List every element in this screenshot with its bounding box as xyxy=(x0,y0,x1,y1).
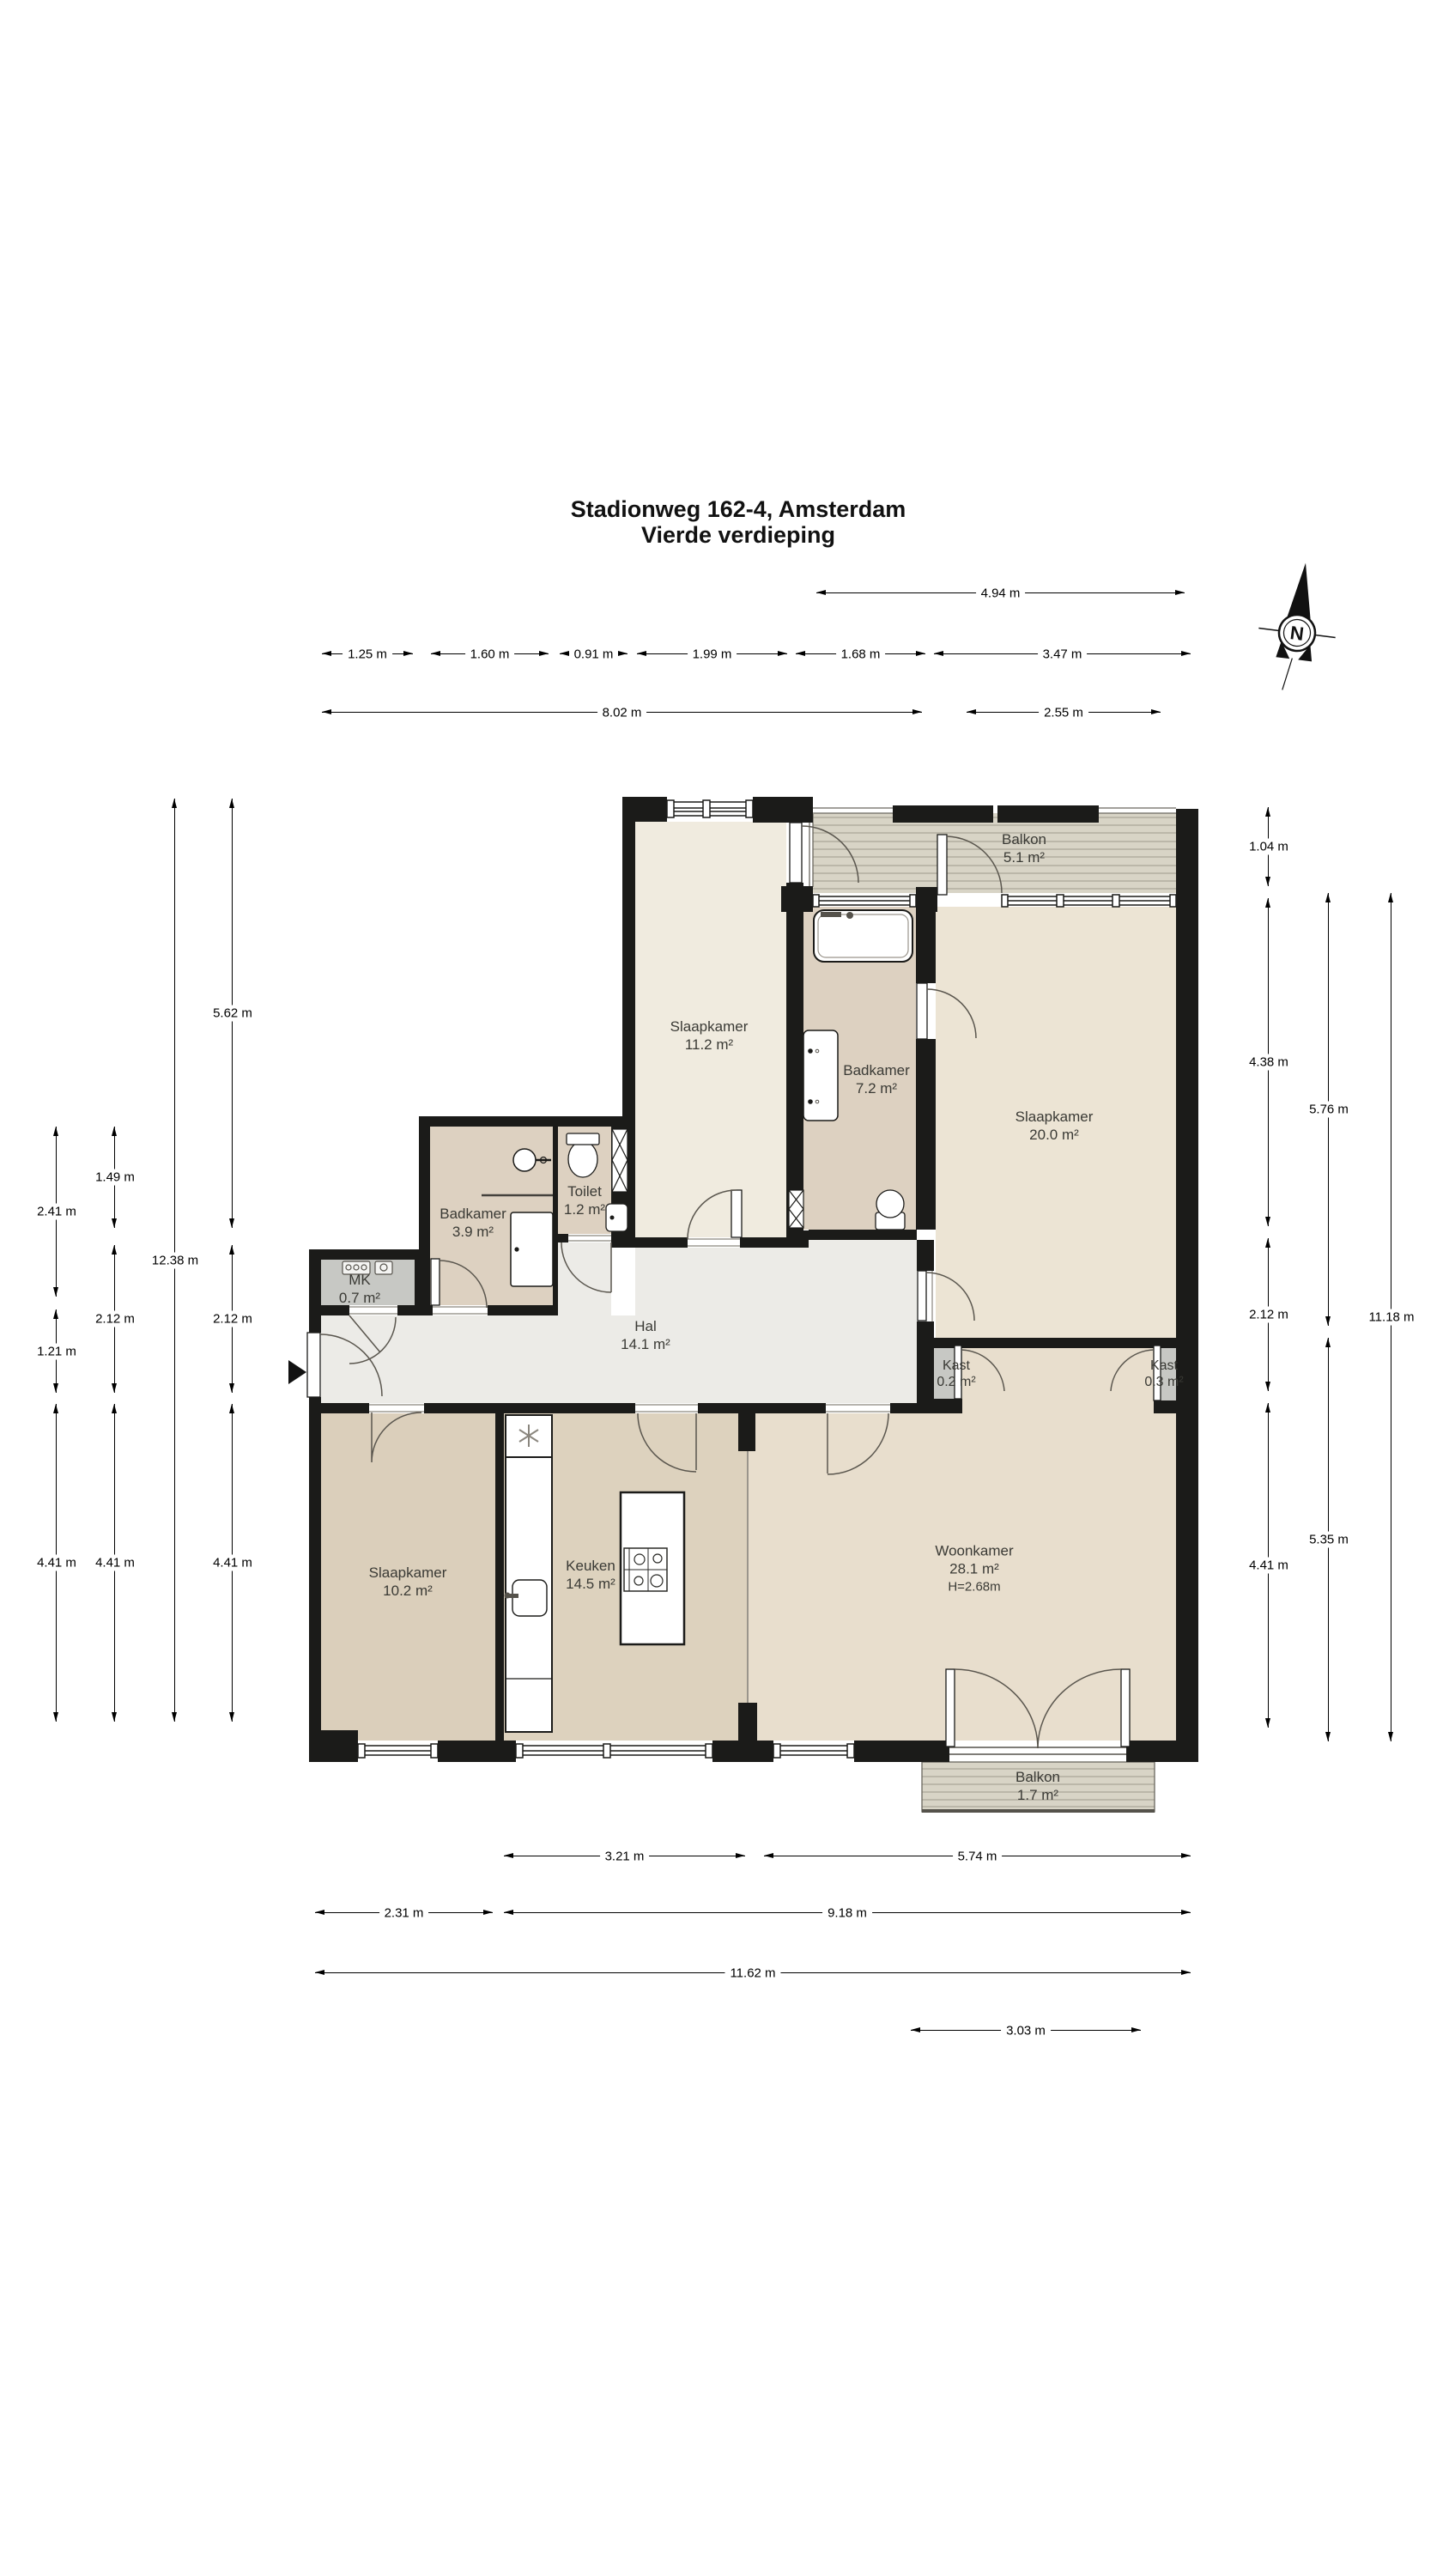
dim-right-104: 1.04 m xyxy=(1268,807,1269,886)
window-slaapkamer-noord xyxy=(667,800,753,817)
dim-top-494: 4.94 m xyxy=(816,592,1185,593)
dim-left-441a: 4.41 m xyxy=(56,1404,57,1722)
door-leaf-slaapkamer-oost xyxy=(918,1271,926,1321)
room-label-slaapkamer-oost: Slaapkamer20.0 m² xyxy=(1016,1108,1094,1144)
compass-icon: N xyxy=(1252,558,1344,696)
dim-left-562: 5.62 m xyxy=(232,799,233,1228)
window-badkamer-groot xyxy=(813,895,916,907)
floor-hal-part xyxy=(786,1240,917,1315)
corner-basin-icon xyxy=(606,1204,627,1231)
dim-left-121: 1.21 m xyxy=(56,1309,57,1393)
floor-hal-part xyxy=(558,1242,611,1315)
kitchen-counter xyxy=(505,1415,553,1732)
window-keuken xyxy=(516,1744,712,1758)
wall-west-lower xyxy=(309,1397,321,1762)
floor-hal-part xyxy=(635,1248,786,1315)
dim-top-347: 3.47 m xyxy=(934,653,1191,654)
threshold-slaapkamer-noord xyxy=(688,1237,740,1248)
threshold-french-doors xyxy=(949,1747,1126,1754)
dim-right-438: 4.38 m xyxy=(1268,898,1269,1226)
window-slaapkamer-oost xyxy=(1002,895,1176,907)
dim-top-199: 1.99 m xyxy=(637,653,787,654)
room-label-mk: MK0.7 m² xyxy=(339,1271,380,1307)
door-leaf-slaapkamer-noord xyxy=(731,1190,742,1237)
dim-right-441: 4.41 m xyxy=(1268,1403,1269,1728)
room-label-slaapkamer-noord: Slaapkamer11.2 m² xyxy=(670,1018,749,1054)
shower-unit-icon xyxy=(511,1212,553,1286)
door-leaf-french-right xyxy=(1121,1669,1130,1747)
room-label-badkamer-klein: Badkamer3.9 m² xyxy=(440,1205,506,1241)
dim-bottom-303: 3.03 m xyxy=(911,2030,1141,2031)
dim-right-1118: 11.18 m xyxy=(1391,893,1391,1741)
dim-top-168: 1.68 m xyxy=(796,653,925,654)
room-label-balkon-noord: Balkon5.1 m² xyxy=(1002,830,1046,866)
threshold-keuken xyxy=(635,1403,698,1413)
door-leaf-badkamer-groot xyxy=(917,983,927,1039)
dim-bottom-574: 5.74 m xyxy=(764,1856,1191,1856)
dim-left-441c: 4.41 m xyxy=(232,1404,233,1722)
dim-left-212a: 2.12 m xyxy=(114,1245,115,1393)
room-label-kast-rechts: Kast0.3 m² xyxy=(1144,1358,1183,1390)
floorplan-drawing: N xyxy=(0,0,1449,2576)
wall-east xyxy=(1176,809,1198,1762)
threshold-toilet xyxy=(568,1234,611,1242)
plan-title: Stadionweg 162-4, Amsterdam Vierde verdi… xyxy=(571,496,906,548)
dim-right-535: 5.35 m xyxy=(1328,1338,1329,1741)
shaft-toilet xyxy=(612,1129,627,1192)
room-label-balkon-zuid: Balkon1.7 m² xyxy=(1016,1768,1060,1804)
dim-top-255: 2.55 m xyxy=(967,712,1161,713)
dim-top-125: 1.25 m xyxy=(322,653,413,654)
dim-bottom-1162: 11.62 m xyxy=(315,1972,1191,1973)
door-leaf-french-left xyxy=(946,1669,955,1747)
door-leaf-balkon-slaapkamer-noord xyxy=(790,823,802,883)
entrance-arrow-icon xyxy=(288,1360,306,1384)
room-label-woonkamer: Woonkamer 28.1 m² H=2.68m xyxy=(935,1542,1013,1596)
dim-left-441b: 4.41 m xyxy=(114,1404,115,1722)
dim-right-212: 2.12 m xyxy=(1268,1238,1269,1391)
dim-top-802: 8.02 m xyxy=(322,712,922,713)
door-leaf-badkamer-klein xyxy=(431,1259,440,1305)
dim-left-241: 2.41 m xyxy=(56,1127,57,1297)
ceiling-height-label: H=2.68m xyxy=(935,1578,1013,1596)
wall-west-upper xyxy=(309,1260,321,1333)
toilet-icon-wc xyxy=(567,1133,599,1177)
plan-title-line1: Stadionweg 162-4, Amsterdam xyxy=(571,496,906,522)
washbasin-icon xyxy=(803,1030,838,1121)
threshold-woonkamer xyxy=(826,1403,890,1413)
room-label-slaapkamer-zuid: Slaapkamer10.2 m² xyxy=(369,1564,447,1600)
door-leaf-entrance xyxy=(307,1333,320,1397)
compass-north-label: N xyxy=(1289,622,1306,645)
room-label-keuken: Keuken14.5 m² xyxy=(566,1557,615,1593)
floorplan-page: N Stadionweg 162-4, Amsterdam Vierde ver… xyxy=(0,0,1449,2576)
floor-hal xyxy=(321,1315,917,1403)
window-slaapkamer-zuid xyxy=(358,1744,438,1758)
door-leaf-balkon-slaapkamer-oost xyxy=(937,835,947,895)
room-label-kast-links: Kast0.2 m² xyxy=(937,1358,975,1390)
window-woonkamer xyxy=(773,1744,854,1758)
dim-bottom-231: 2.31 m xyxy=(315,1912,493,1913)
dim-bottom-321: 3.21 m xyxy=(504,1856,745,1856)
threshold-slaapkamer-zuid xyxy=(369,1403,424,1413)
dim-top-160: 1.60 m xyxy=(431,653,549,654)
stove-icon xyxy=(624,1548,667,1591)
plan-title-line2: Vierde verdieping xyxy=(571,522,906,548)
dim-left-212b: 2.12 m xyxy=(232,1245,233,1393)
threshold-badkamer-klein xyxy=(433,1305,488,1315)
shaft-badkamer-groot xyxy=(789,1190,803,1228)
room-label-toilet: Toilet1.2 m² xyxy=(564,1182,605,1218)
dim-bottom-918: 9.18 m xyxy=(504,1912,1191,1913)
dim-left-1238: 12.38 m xyxy=(174,799,175,1722)
kitchen-island xyxy=(621,1492,684,1644)
bathtub-icon xyxy=(814,910,912,962)
dim-right-576: 5.76 m xyxy=(1328,893,1329,1326)
room-label-hal: Hal14.1 m² xyxy=(621,1317,670,1353)
room-label-badkamer-groot: Badkamer7.2 m² xyxy=(843,1061,909,1097)
dim-top-091: 0.91 m xyxy=(560,653,627,654)
dim-left-149: 1.49 m xyxy=(114,1127,115,1228)
toilet-icon-badkamer xyxy=(876,1190,905,1230)
